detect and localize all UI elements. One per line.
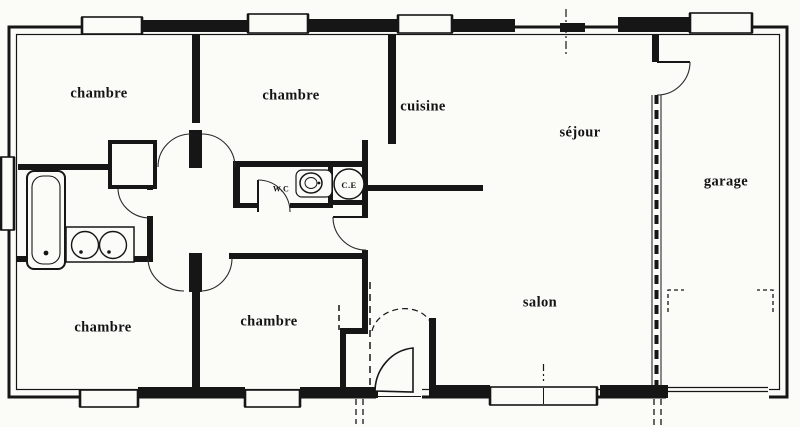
window-outlined [398,15,452,33]
interior-wall [229,253,363,259]
bathtub-drain [44,251,49,256]
room-label-bedroom-bottom-middle: chambre [240,314,297,331]
interior-wall [147,216,153,262]
floor-plan-drawing [0,0,800,427]
window-outlined [1,157,14,230]
interior-wall [192,292,200,394]
interior-wall [652,34,659,62]
window-filled [138,387,245,398]
window-filled [307,19,398,32]
room-label-bedroom-bottom-left: chambre [74,320,131,337]
garage-opening [666,380,769,399]
interior-wall [18,164,110,170]
closet [110,142,155,187]
interior-wall [233,167,240,207]
interior-wall [233,161,366,167]
interior-wall [192,34,200,123]
interior-wall [362,250,368,334]
interior-wall [340,328,368,334]
window-filled [142,20,253,32]
toilet-flush-dot [318,182,321,185]
interior-wall [388,34,396,144]
interior-wall [290,203,333,208]
room-label-kitchen: cuisine [400,99,446,116]
interior-wall [362,185,483,191]
interior-wall [429,318,436,396]
window-filled [300,387,378,398]
window-outlined [690,13,752,33]
floor-plan-page: chambre chambre cuisine séjour garage sa… [0,0,800,427]
window-outlined [80,390,138,407]
sink-drain [79,250,83,254]
room-label-bedroom-top-middle: chambre [262,88,319,105]
interior-wall [340,334,346,396]
interior-wall [189,253,202,292]
room-label-water-heater: C.E [341,180,356,190]
room-label-wc: W.C [273,185,289,194]
window-filled [560,23,585,32]
window-outlined [245,390,300,407]
room-label-lounge: salon [523,295,557,312]
window-filled [452,19,515,32]
room-label-living-room: séjour [559,125,600,142]
room-label-garage: garage [704,174,748,191]
window-filled [618,17,690,32]
window-filled [436,385,490,398]
interior-wall [189,130,202,168]
interior-wall [233,203,258,208]
window-outlined [82,17,142,34]
sink-drain [107,250,111,254]
room-label-bedroom-top-left: chambre [70,86,127,103]
window-outlined [248,14,308,33]
